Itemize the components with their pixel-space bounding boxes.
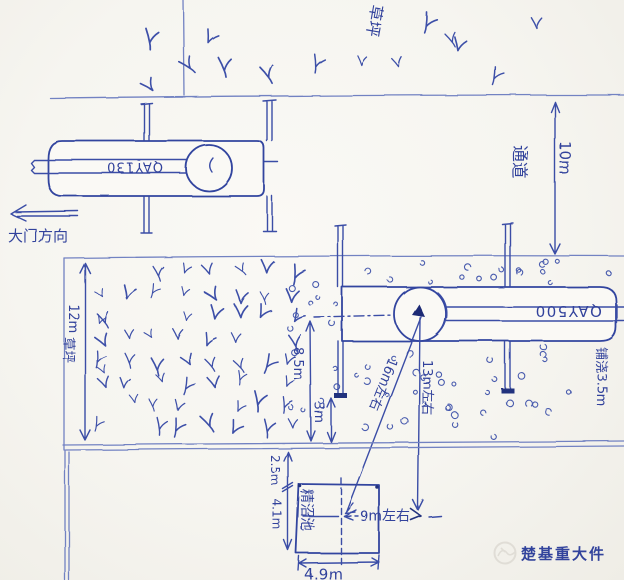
- dim-9m-extension-dash: [429, 516, 441, 517]
- qay130-outrigger-right-top: [263, 100, 276, 141]
- lower-road-edge-1: [63, 441, 624, 445]
- dim-9m-right-arrow: [411, 509, 421, 520]
- qay500-outrigger-left-bottom: [338, 341, 343, 394]
- qay500-outrigger-right-top: [502, 223, 513, 287]
- crane-qay500: QAY500: [314, 223, 624, 398]
- site-sketch: 楚基重大件 草坪 QAY130 大门方向: [0, 0, 624, 580]
- gate-direction-arrow-icon: [11, 205, 78, 221]
- watermark-text: 楚基重大件: [521, 545, 606, 563]
- qay130-turntable: [186, 145, 232, 191]
- radius-16m-label: 16m左右: [365, 356, 399, 413]
- boundary-line-top-left: [183, 0, 184, 95]
- lawn-grass-marks: [90, 260, 306, 439]
- dim-4-1m-label: 4.1m: [270, 499, 284, 530]
- qay500-outrigger-right-pad: [501, 388, 514, 393]
- pool-corner-dot-2: [375, 485, 379, 489]
- pool-corner-dot-1: [298, 484, 302, 488]
- watermark-logo-icon: [495, 543, 516, 564]
- dim-10m-line: [550, 102, 560, 254]
- lifting-radius-lines: 16m左右 13m左右: [345, 317, 434, 513]
- dim-12m-label: 12m: [65, 304, 80, 333]
- qay130-outrigger-left-bottom: [141, 196, 152, 233]
- pool-label: 精沼池: [298, 489, 314, 531]
- dim-9m: 9m左右: [360, 509, 441, 525]
- dim-8-5m-line: [306, 321, 315, 441]
- watermark: 楚基重大件: [495, 543, 607, 564]
- road-bottom-edge: [64, 256, 624, 258]
- grass-marks-top: [141, 12, 542, 94]
- passage-label: 通道: [509, 145, 529, 179]
- dim-4-9m: 4.9m: [298, 555, 379, 580]
- dim-2-5m-label: 2.5m: [268, 455, 282, 486]
- watermark-logo-swan-icon: [498, 548, 515, 556]
- lower-road-edge-2: [66, 446, 624, 450]
- qay130-model-label: QAY130: [107, 159, 164, 174]
- qay500-outrigger-right-bottom: [505, 341, 510, 389]
- dim-3m-line: [327, 398, 335, 442]
- radius-16m-line: [345, 317, 421, 513]
- ground-note-label: 铺浇3.5m: [593, 347, 608, 406]
- gate-direction: 大门方向: [8, 205, 78, 245]
- qay130-outrigger-left-top: [141, 103, 152, 141]
- gravel-dots: [286, 258, 611, 439]
- dim-4-9m-label: 4.9m: [304, 565, 342, 580]
- dim-12m-line: [80, 263, 90, 440]
- passage-dimension: 10m 通道: [509, 102, 574, 254]
- qay500-model-label: QAY500: [534, 302, 602, 320]
- qay500-outrigger-left-pad: [334, 393, 347, 398]
- dim-3m: 3m: [311, 398, 335, 442]
- top-lawn-label: 草坪: [363, 3, 387, 38]
- dim-3m-label: 3m: [311, 402, 326, 423]
- dim-8-5m-label: 8.5m: [290, 347, 305, 380]
- lower-left-border: [65, 450, 69, 580]
- dim-10m-label: 10m: [556, 141, 574, 175]
- dim-2-5m-4-1m: 2.5m 4.1m: [268, 452, 293, 550]
- scanned-sketch-page: 楚基重大件 草坪 QAY130 大门方向: [0, 0, 624, 580]
- offset-13m-label: 13m左右: [419, 360, 434, 415]
- crane-qay130: QAY130: [31, 100, 278, 233]
- gate-direction-label: 大门方向: [8, 227, 68, 245]
- left-lawn-label: 草坪: [60, 337, 75, 363]
- road-top-edge: [50, 95, 624, 98]
- dim-9m-label: 9m左右: [360, 509, 411, 525]
